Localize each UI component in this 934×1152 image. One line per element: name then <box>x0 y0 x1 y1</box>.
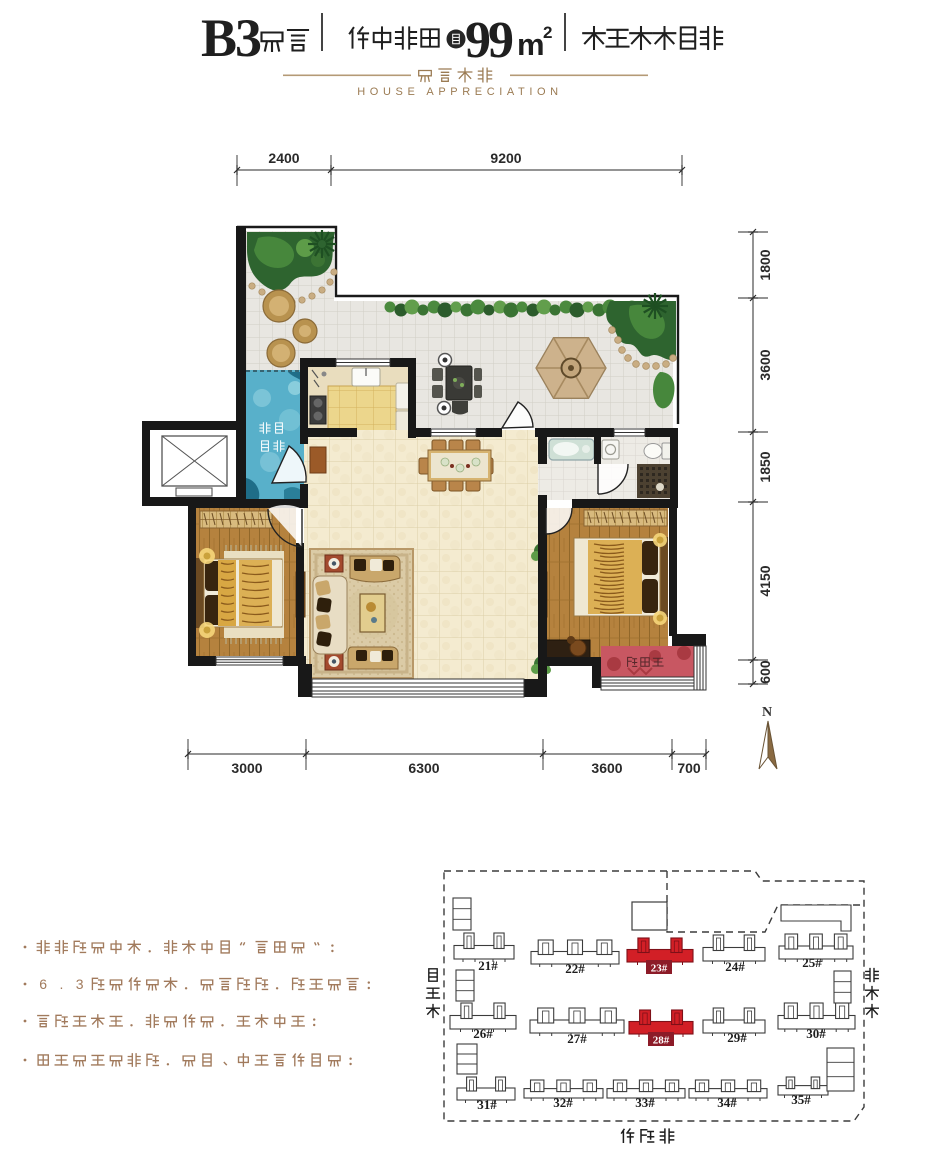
svg-text:3000: 3000 <box>231 760 262 776</box>
svg-text:4150: 4150 <box>757 565 773 596</box>
svg-text:21#: 21# <box>478 958 498 973</box>
svg-text:27#: 27# <box>567 1031 587 1046</box>
svg-text:600: 600 <box>757 660 773 684</box>
svg-text:6: 6 <box>39 976 47 992</box>
svg-text:3600: 3600 <box>757 349 773 380</box>
svg-text:34#: 34# <box>717 1095 737 1110</box>
svg-text:26#: 26# <box>473 1026 493 1041</box>
svg-text:28#: 28# <box>653 1035 670 1047</box>
svg-text:22#: 22# <box>565 961 585 976</box>
svg-text:1800: 1800 <box>757 249 773 280</box>
svg-text:HOUSE APPRECIATION: HOUSE APPRECIATION <box>357 86 562 98</box>
svg-text:.: . <box>59 976 63 992</box>
svg-text:33#: 33# <box>635 1095 655 1110</box>
svg-text:3: 3 <box>76 976 84 992</box>
svg-text:32#: 32# <box>553 1095 573 1110</box>
svg-text:24#: 24# <box>725 959 745 974</box>
svg-text:2: 2 <box>543 23 552 42</box>
svg-text:N: N <box>762 705 772 720</box>
svg-text:1850: 1850 <box>757 451 773 482</box>
svg-text:2400: 2400 <box>268 150 299 166</box>
svg-text:25#: 25# <box>802 955 822 970</box>
svg-text:9200: 9200 <box>490 150 521 166</box>
svg-text:6300: 6300 <box>408 760 439 776</box>
svg-text:99: 99 <box>465 12 513 69</box>
svg-text:35#: 35# <box>791 1092 811 1107</box>
svg-text:700: 700 <box>677 760 701 776</box>
svg-text:3600: 3600 <box>591 760 622 776</box>
svg-text:m: m <box>517 27 545 62</box>
svg-text:29#: 29# <box>727 1030 747 1045</box>
svg-text:31#: 31# <box>477 1097 497 1112</box>
svg-text:B3: B3 <box>201 8 261 68</box>
svg-text:30#: 30# <box>806 1026 826 1041</box>
svg-text:23#: 23# <box>651 963 668 975</box>
